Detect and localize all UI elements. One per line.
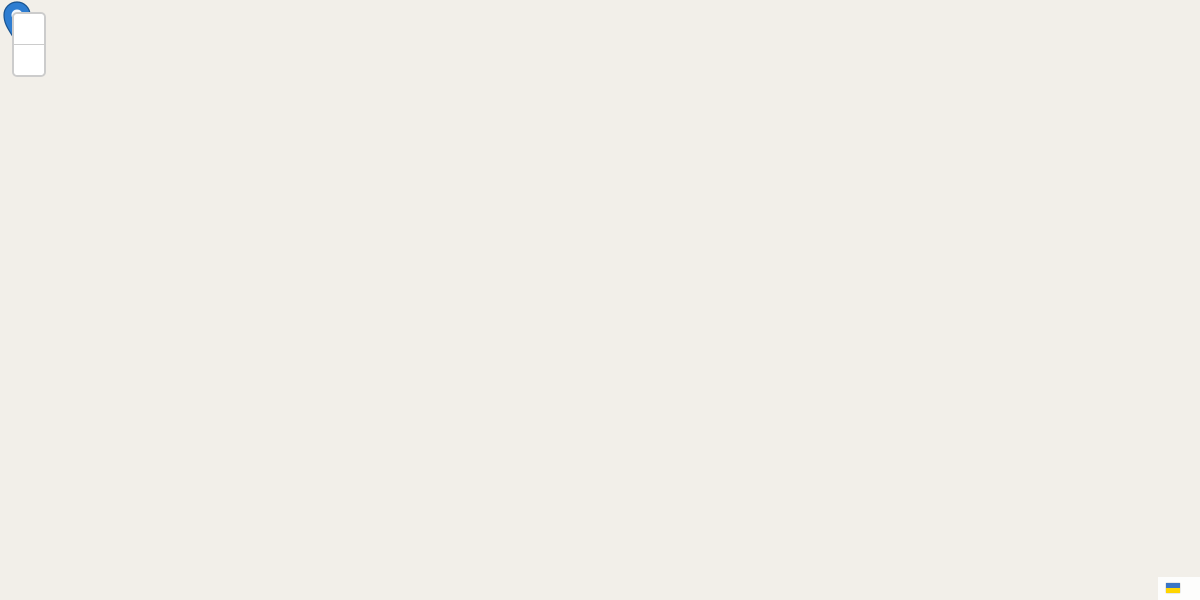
zoom-control xyxy=(12,12,46,77)
base-map-tiles xyxy=(0,0,1200,600)
attribution-bar xyxy=(1158,577,1200,600)
overlay-polygons-layer xyxy=(0,0,1200,600)
zoom-in-button[interactable] xyxy=(14,14,44,45)
map-canvas[interactable] xyxy=(0,0,1200,600)
zoom-out-button[interactable] xyxy=(14,45,44,75)
ukraine-flag-icon xyxy=(1166,583,1180,593)
map-labels-layer xyxy=(0,0,1200,600)
